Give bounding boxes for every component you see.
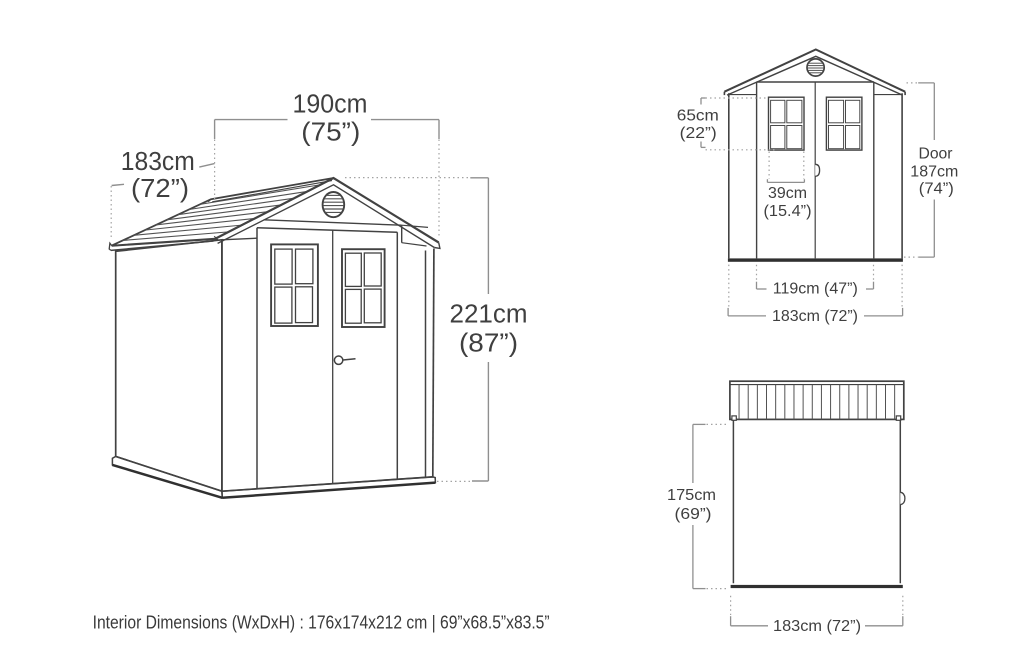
svg-text:183cm (72”): 183cm (72”) xyxy=(773,618,861,635)
svg-text:Interior Dimensions (WxDxH) :: Interior Dimensions (WxDxH) : 176x174x21… xyxy=(93,612,550,633)
svg-text:39cm: 39cm xyxy=(768,185,807,202)
svg-text:119cm (47”): 119cm (47”) xyxy=(773,281,858,298)
svg-text:221cm: 221cm xyxy=(450,301,528,329)
svg-text:183cm (72”): 183cm (72”) xyxy=(772,308,858,325)
svg-text:(15.4”): (15.4”) xyxy=(764,203,812,220)
svg-text:65cm: 65cm xyxy=(677,107,719,124)
svg-text:(87”): (87”) xyxy=(459,330,518,358)
svg-text:187cm: 187cm xyxy=(910,163,958,180)
svg-text:175cm: 175cm xyxy=(667,487,716,504)
svg-text:190cm: 190cm xyxy=(293,91,368,119)
svg-text:183cm: 183cm xyxy=(121,148,195,176)
svg-text:(69”): (69”) xyxy=(675,506,712,523)
svg-text:(75”): (75”) xyxy=(301,119,360,147)
svg-text:(72”): (72”) xyxy=(131,175,189,203)
svg-text:(74”): (74”) xyxy=(919,180,954,197)
svg-text:(22”): (22”) xyxy=(680,125,717,142)
svg-text:Door: Door xyxy=(919,145,954,162)
